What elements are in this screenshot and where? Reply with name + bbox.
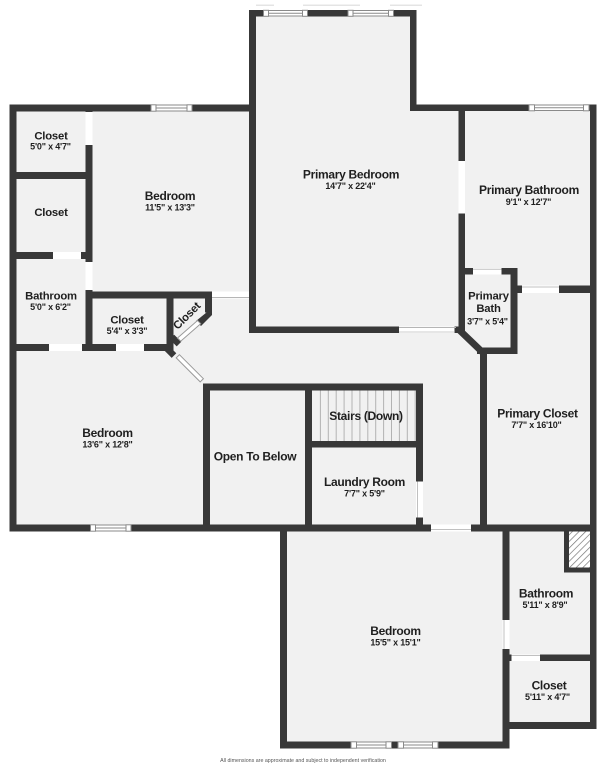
- svg-text:Closet: Closet: [34, 207, 68, 219]
- svg-text:Primary Bedroom: Primary Bedroom: [303, 167, 399, 181]
- svg-text:Open To Below: Open To Below: [214, 449, 298, 463]
- svg-text:Bedroom: Bedroom: [145, 189, 196, 203]
- svg-text:Bathroom: Bathroom: [519, 586, 573, 600]
- svg-text:3'7" x 5'4": 3'7" x 5'4": [467, 316, 508, 326]
- svg-text:5'4" x 3'3": 5'4" x 3'3": [107, 326, 148, 336]
- svg-text:Bedroom: Bedroom: [370, 624, 421, 638]
- svg-text:14'7" x 22'4": 14'7" x 22'4": [325, 181, 375, 191]
- svg-text:7'7" x 5'9": 7'7" x 5'9": [344, 488, 385, 498]
- svg-text:5'0" x 4'7": 5'0" x 4'7": [30, 142, 71, 152]
- svg-text:Bath: Bath: [476, 303, 501, 315]
- svg-text:5'11" x 8'9": 5'11" x 8'9": [523, 600, 568, 610]
- svg-text:Bedroom: Bedroom: [82, 426, 133, 440]
- svg-text:13'6" x 12'8": 13'6" x 12'8": [82, 439, 132, 449]
- svg-text:Primary: Primary: [468, 291, 510, 303]
- svg-text:Closet: Closet: [110, 315, 144, 327]
- svg-text:7'7" x 16'10": 7'7" x 16'10": [511, 420, 561, 430]
- svg-text:Laundry Room: Laundry Room: [324, 475, 405, 489]
- svg-text:Primary Closet: Primary Closet: [497, 406, 578, 420]
- svg-text:11'5" x 13'3": 11'5" x 13'3": [145, 202, 195, 212]
- svg-text:Bathroom: Bathroom: [25, 291, 77, 303]
- svg-text:5'11" x 4'7": 5'11" x 4'7": [525, 692, 570, 702]
- svg-text:Primary Bathroom: Primary Bathroom: [479, 183, 579, 197]
- svg-text:Stairs (Down): Stairs (Down): [329, 409, 403, 423]
- svg-text:9'1" x 12'7": 9'1" x 12'7": [506, 197, 551, 207]
- svg-text:15'5" x 15'1": 15'5" x 15'1": [370, 637, 420, 647]
- svg-text:Closet: Closet: [532, 678, 567, 692]
- svg-text:All dimensions are approximate: All dimensions are approximate and subje…: [220, 758, 386, 764]
- svg-text:5'0" x 6'2": 5'0" x 6'2": [30, 302, 71, 312]
